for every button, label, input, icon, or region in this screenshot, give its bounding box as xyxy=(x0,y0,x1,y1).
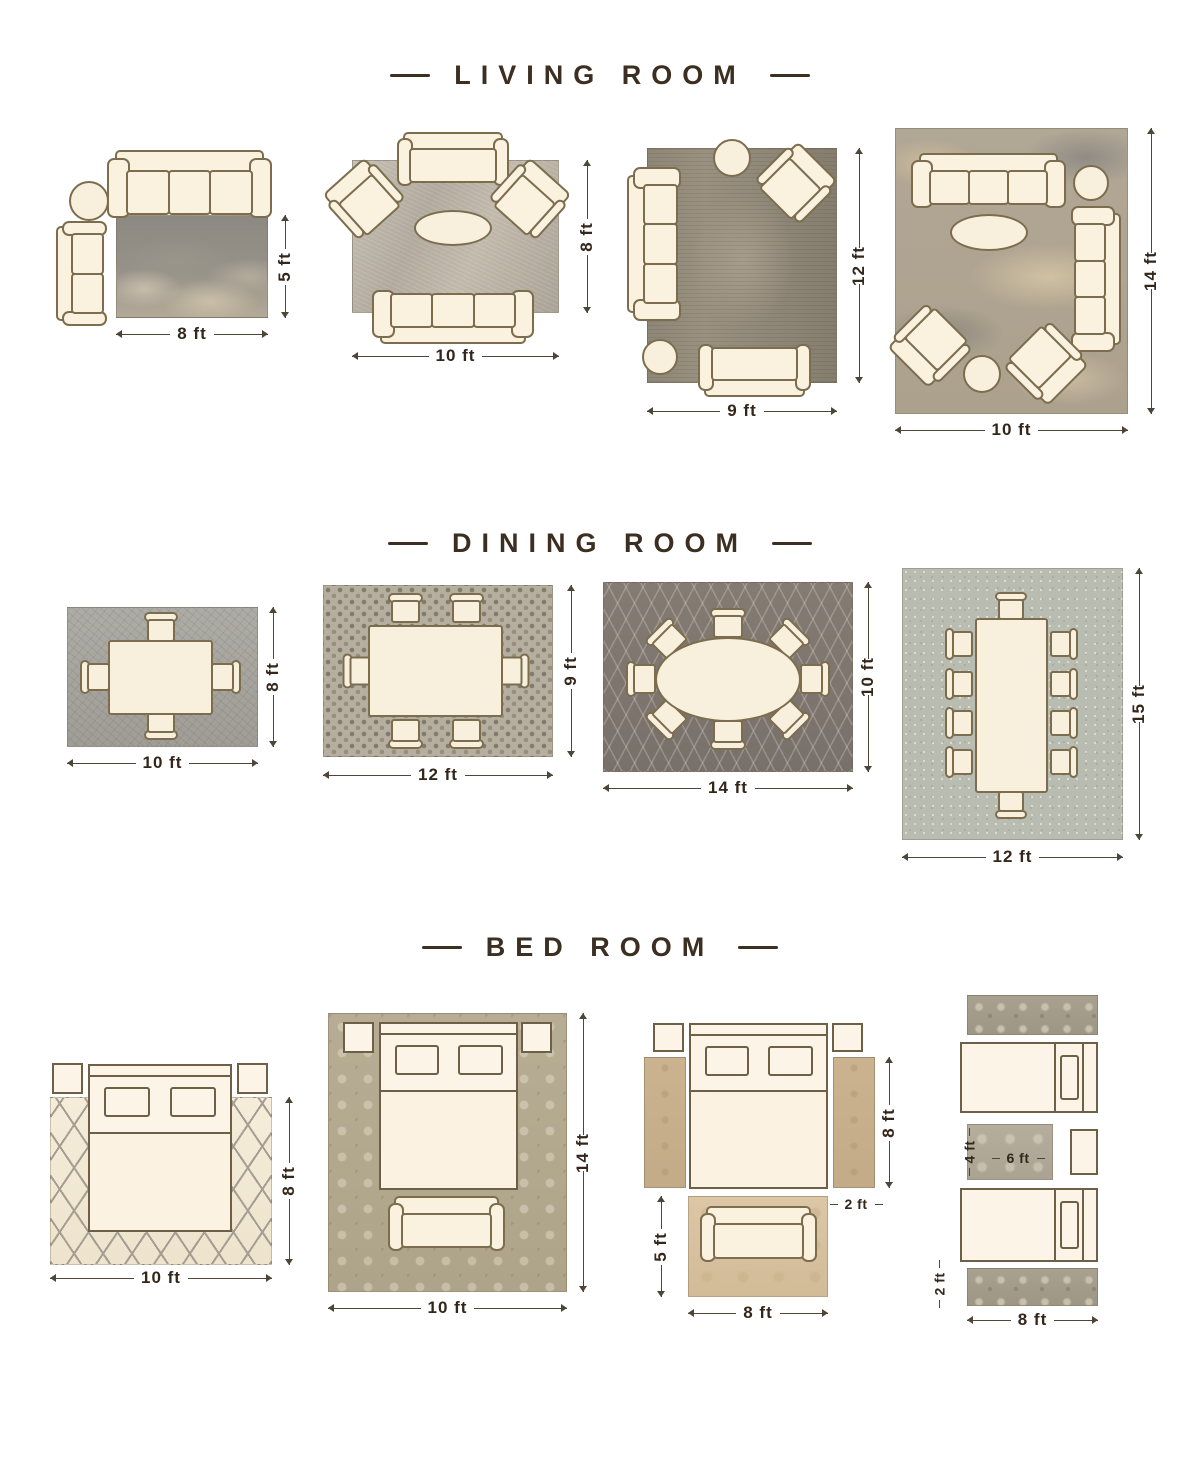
dim-width: 8 ft xyxy=(967,1308,1098,1332)
runner-rug xyxy=(967,995,1098,1035)
dim-runner-width: 2 ft xyxy=(928,1256,950,1312)
rug-size-guide: LIVING ROOM 5 ft 8 ft xyxy=(0,0,1200,1467)
headboard xyxy=(1082,1042,1084,1113)
dim-accent-width: 6 ft xyxy=(986,1146,1050,1170)
headboard xyxy=(1082,1188,1084,1262)
dim-accent-height: 4 ft xyxy=(958,1124,980,1180)
bedroom-layout-twin-beds: 4 ft 6 ft 2 ft 8 ft xyxy=(0,0,1200,1467)
nightstand xyxy=(1070,1129,1098,1175)
twin-bed xyxy=(960,1188,1098,1262)
pillow xyxy=(1060,1055,1079,1101)
twin-bed xyxy=(960,1042,1098,1113)
runner-rug xyxy=(967,1268,1098,1306)
pillow xyxy=(1060,1201,1079,1249)
